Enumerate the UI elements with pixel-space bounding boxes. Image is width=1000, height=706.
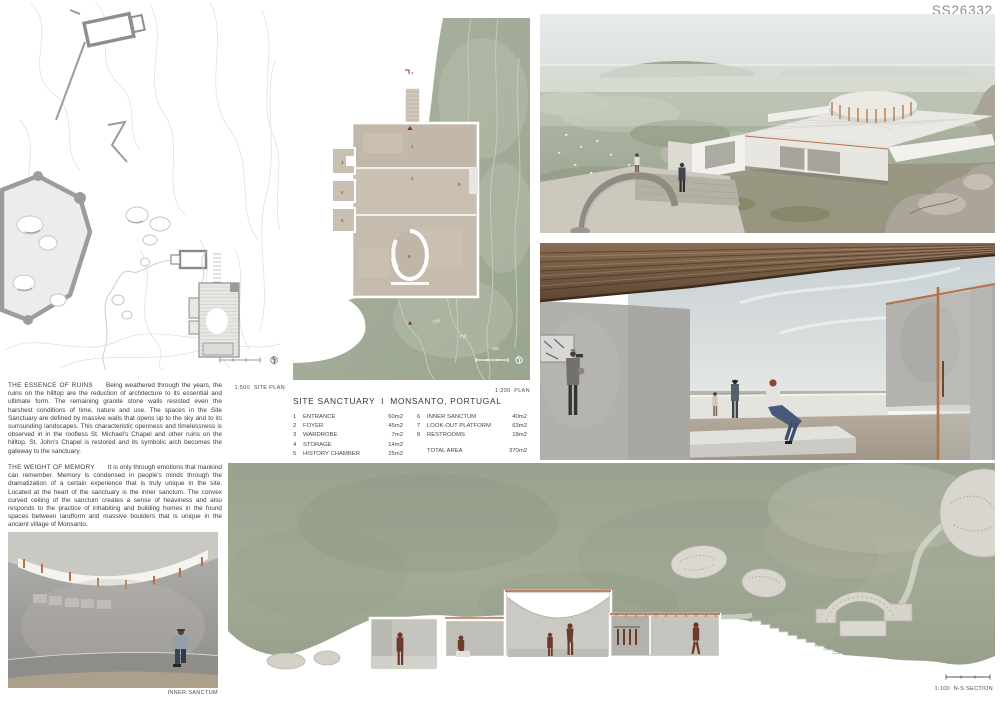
essay-body: Being weathered through the years, the r… [8, 382, 222, 455]
boulders-plan [112, 207, 170, 319]
ruin-chapel-plan [84, 11, 146, 46]
render-section [228, 463, 995, 690]
section-room-foyer [445, 618, 505, 657]
table-row: 5HISTORY CHAMBER25m2 [293, 451, 403, 457]
ground-rocks [267, 651, 340, 669]
footpath-plan [103, 260, 172, 370]
render-exterior [540, 14, 995, 233]
table-row: 6INNER SANCTUM40m2 [417, 414, 527, 420]
competition-board: SS26332 [0, 0, 1000, 706]
section-room-wardrobe [610, 614, 720, 657]
essay-heading: THE WEIGHT OF MEMORY [8, 464, 95, 471]
essay-body: It is only through emotions that mankind… [8, 464, 222, 528]
stairs-link-plan [213, 254, 221, 282]
site-plan-drawing [0, 0, 285, 370]
essay-weight-of-memory: THE WEIGHT OF MEMORYIt is only through e… [8, 464, 222, 530]
table-row: 8RESTROOMS18m2 [417, 432, 527, 438]
wall-mid-left [628, 305, 690, 460]
section-scale-bar-icon [942, 672, 994, 682]
plan-caption: 1:200 PLAN [420, 388, 530, 394]
sanctuary-building-plan [189, 283, 239, 357]
render-inner-sanctum [8, 532, 218, 688]
scale-bar-icon [220, 358, 260, 363]
render-lookout-interior [540, 243, 995, 460]
section-inner-sanctum [505, 591, 611, 657]
table-row: 2FOYER45m2 [293, 423, 403, 429]
glass-door [938, 281, 992, 460]
table-row-total: TOTAL AREA370m2 [417, 448, 527, 454]
inner-sanctum-caption: INNER SANCTUM [8, 690, 218, 696]
section-caption: 1:100 N-S SECTION [880, 686, 993, 692]
table-row: 4STORAGE14m2 [293, 442, 403, 448]
table-row: 7LOOK-OUT PLATFORM63m2 [417, 423, 527, 429]
essay-essence-of-ruins: THE ESSENCE OF RUINSBeing weathered thro… [8, 382, 222, 456]
section-room-entrance [370, 618, 438, 670]
table-row: 1ENTRANCE60m2 [293, 414, 403, 420]
program-table: 1ENTRANCE60m2 2FOYER45m2 3WARDROBE7m2 4S… [293, 414, 533, 460]
chapel-plan [171, 251, 206, 268]
essay-heading: THE ESSENCE OF RUINS [8, 382, 93, 389]
door-handle [942, 361, 944, 397]
program-column-right: 6INNER SANCTUM40m2 7LOOK-OUT PLATFORM63m… [417, 414, 527, 460]
project-title: SITE SANCTUARY I MONSANTO, PORTUGAL [293, 396, 502, 406]
site-plan-svg [0, 0, 285, 370]
table-row: 3WARDROBE7m2 [293, 432, 403, 438]
program-column-left: 1ENTRANCE60m2 2FOYER45m2 3WARDROBE7m2 4S… [293, 414, 403, 460]
svg-text:7: 7 [411, 71, 414, 76]
castle-enclosure-plan [2, 171, 90, 325]
north-arrow-icon [271, 356, 278, 365]
plan-drawing: 715 710 705 [293, 18, 530, 380]
